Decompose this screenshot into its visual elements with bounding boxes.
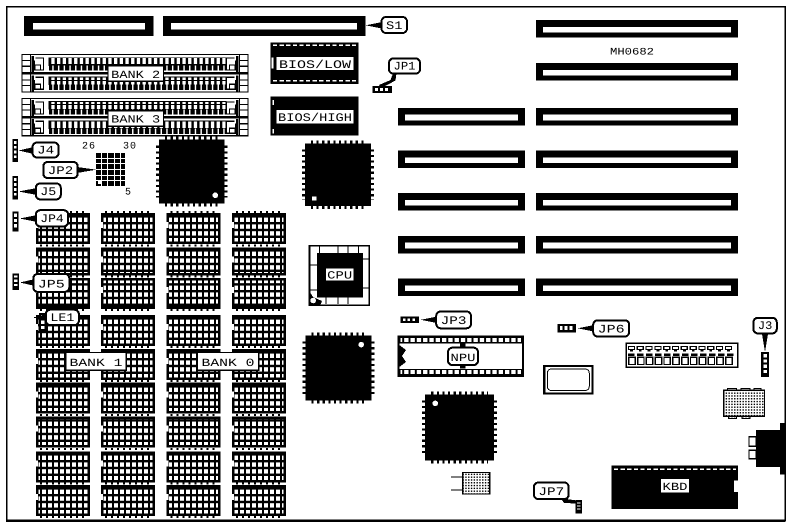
- svg-text:BIOS/HIGH: BIOS/HIGH: [278, 112, 352, 125]
- svg-text:JP5: JP5: [38, 279, 65, 292]
- svg-text:LE1: LE1: [50, 312, 74, 325]
- svg-text:BANK 2: BANK 2: [111, 70, 160, 82]
- svg-text:CPU: CPU: [327, 271, 352, 283]
- svg-text:BANK 3: BANK 3: [111, 115, 160, 127]
- svg-text:JP2: JP2: [48, 165, 74, 178]
- svg-text:S1: S1: [386, 20, 403, 33]
- svg-text:BIOS/LOW: BIOS/LOW: [279, 59, 351, 72]
- svg-text:JP7: JP7: [538, 486, 564, 499]
- svg-text:J3: J3: [758, 320, 772, 333]
- svg-text:NPU: NPU: [451, 353, 476, 365]
- svg-text:30: 30: [123, 142, 137, 153]
- svg-text:J4: J4: [37, 144, 54, 157]
- svg-text:BANK 1: BANK 1: [70, 358, 124, 370]
- svg-text:JP3: JP3: [441, 315, 467, 328]
- svg-text:BANK 0: BANK 0: [202, 358, 255, 370]
- svg-text:KBD: KBD: [663, 482, 688, 494]
- svg-text:JP4: JP4: [40, 213, 63, 226]
- svg-text:MH0682: MH0682: [610, 47, 654, 58]
- svg-text:JP1: JP1: [394, 61, 416, 74]
- svg-text:J5: J5: [40, 186, 56, 199]
- svg-text:5: 5: [125, 188, 131, 199]
- svg-text:JP6: JP6: [598, 323, 625, 336]
- svg-text:26: 26: [82, 142, 96, 153]
